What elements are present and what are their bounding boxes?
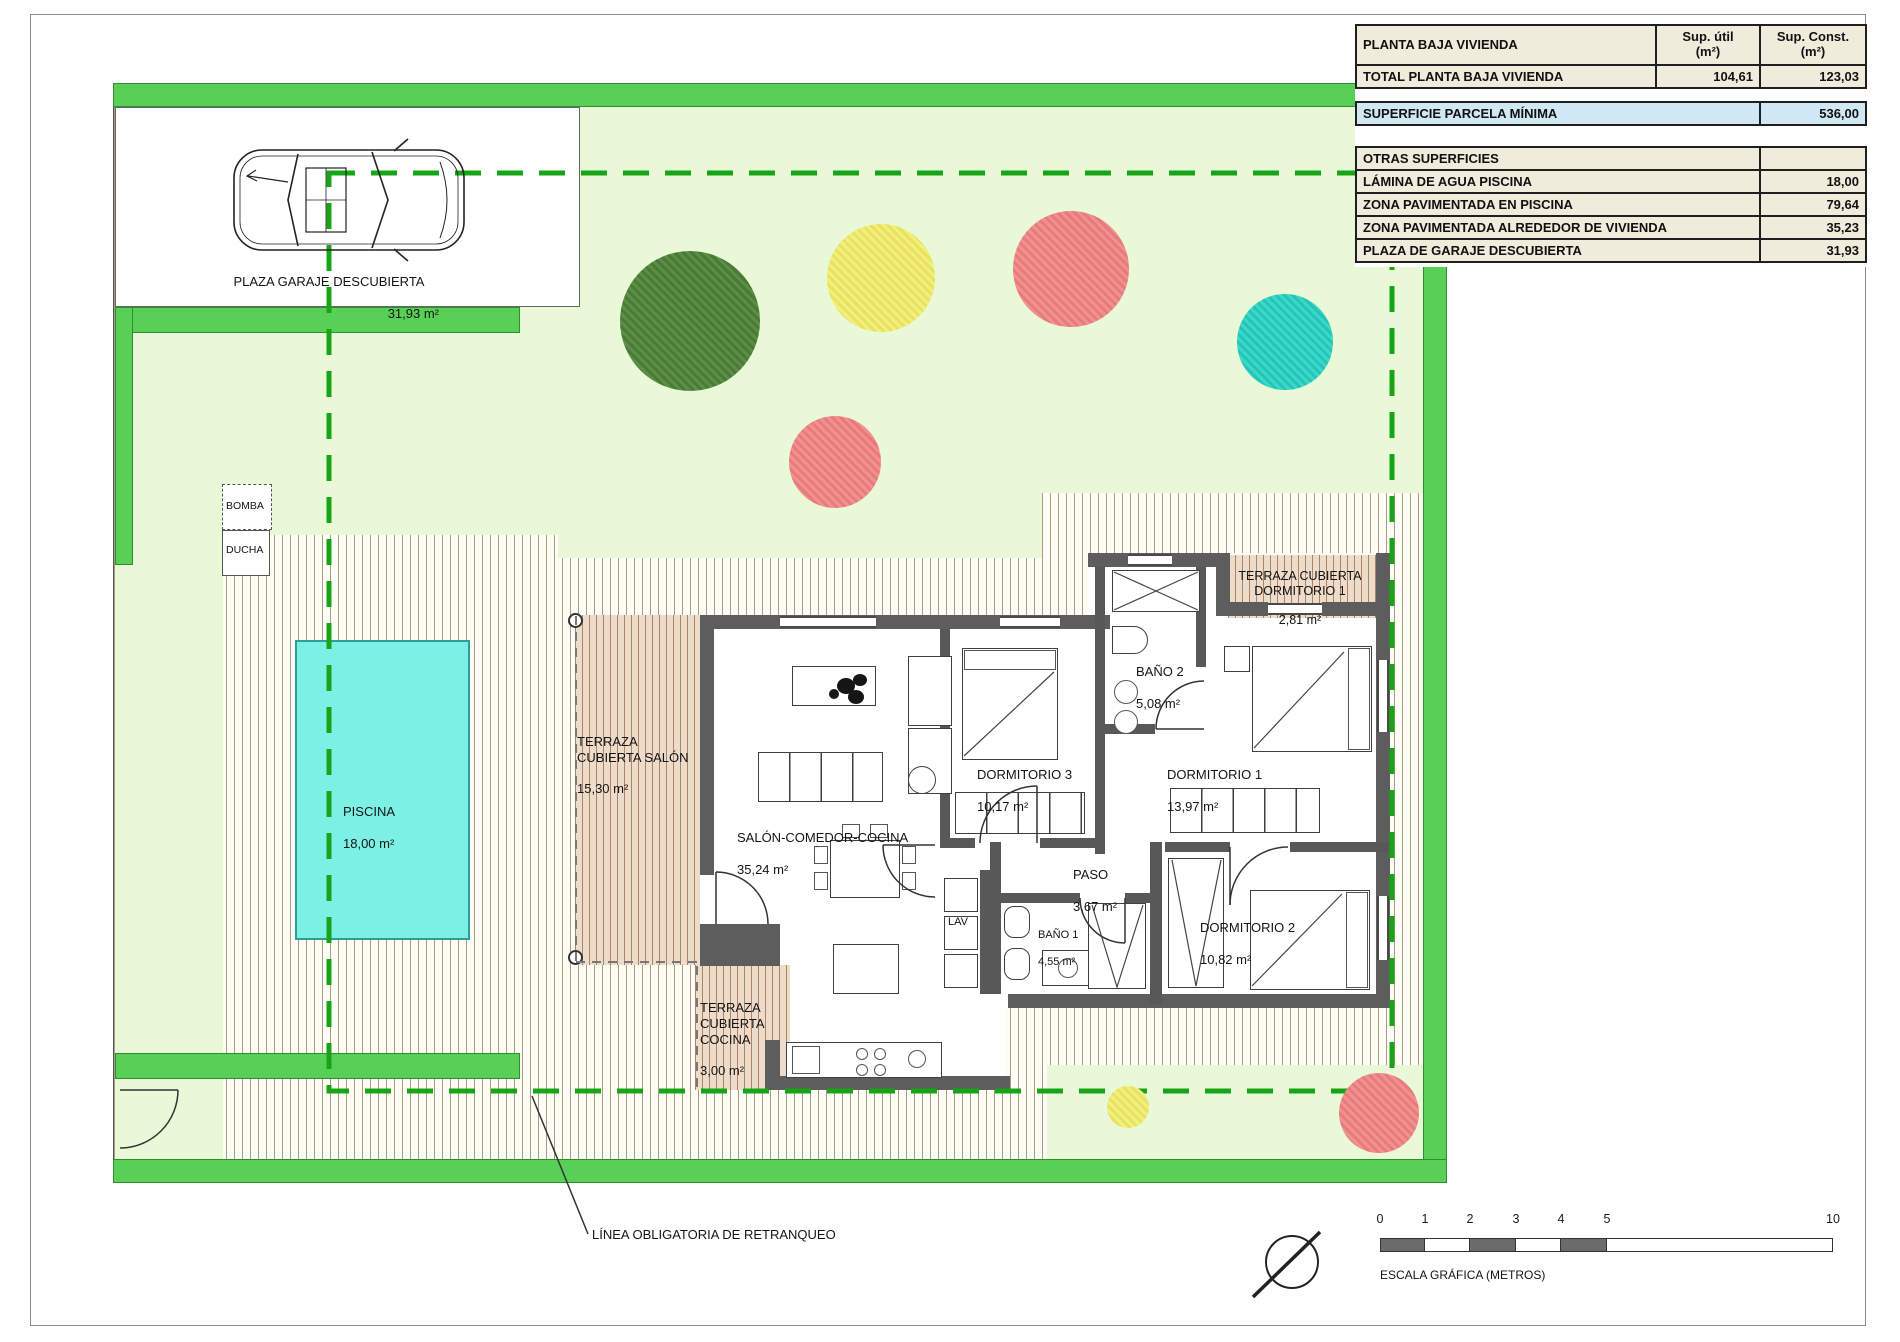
scale-tick: 10 — [1826, 1212, 1840, 1226]
label-terraza-dorm1: TERRAZA CUBIERTA DORMITORIO 1 2,81 m² — [1222, 554, 1378, 643]
tree-teal — [1237, 294, 1333, 390]
tree-dark-green — [620, 251, 760, 391]
tree-salmon-large — [1013, 211, 1129, 327]
leader-line — [532, 1096, 588, 1234]
label-garage: PLAZA GARAJE DESCUBIERTA 31,93 m² — [205, 258, 453, 337]
label-dorm2: DORMITORIO 2 10,82 m² — [1200, 904, 1295, 983]
label-bomba: BOMBA — [226, 500, 264, 513]
table-row: ZONA PAVIMENTADA EN PISCINA 79,64 — [1355, 192, 1867, 217]
label-terraza-salon: TERRAZA CUBIERTA SALÓN 15,30 m² — [577, 718, 689, 813]
scale-caption: ESCALA GRÁFICA (METROS) — [1380, 1268, 1545, 1283]
label-piscina: PISCINA 18,00 m² — [343, 788, 395, 867]
north-symbol-icon — [1253, 1232, 1320, 1297]
tree-yellow — [827, 224, 935, 332]
plan-sheet: PLAZA GARAJE DESCUBIERTA 31,93 m² PISCIN… — [0, 0, 1900, 1342]
scale-tick: 4 — [1558, 1212, 1565, 1226]
gate-arc — [120, 1090, 178, 1148]
label-salon: SALÓN-COMEDOR-COCINA 35,24 m² — [737, 814, 908, 893]
label-lav: LAV — [948, 916, 968, 929]
table-row: LÁMINA DE AGUA PISCINA 18,00 — [1355, 169, 1867, 194]
label-bano1: BAÑO 1 4,55 m² — [1038, 916, 1078, 983]
scale-tick: 1 — [1422, 1212, 1429, 1226]
scale-segment — [1606, 1238, 1833, 1252]
label-ducha: DUCHA — [226, 544, 263, 557]
scale-tick: 3 — [1513, 1212, 1520, 1226]
label-terraza-cocina: TERRAZA CUBIERTA COCINA 3,00 m² — [700, 984, 765, 1095]
tree-salmon-mid — [789, 416, 881, 508]
scale-tick: 2 — [1467, 1212, 1474, 1226]
col-sup-util: Sup. útil (m²) — [1655, 26, 1759, 64]
car-icon — [234, 139, 464, 261]
table-row: ZONA PAVIMENTADA ALREDEDOR DE VIVIENDA 3… — [1355, 215, 1867, 240]
label-bano2: BAÑO 2 5,08 m² — [1136, 648, 1184, 727]
label-garage-name: PLAZA GARAJE DESCUBIERTA — [205, 274, 453, 290]
label-paso: PASO 3,67 m² — [1073, 851, 1117, 930]
table-title: PLANTA BAJA VIVIENDA — [1357, 26, 1655, 64]
label-dorm3: DORMITORIO 3 10,17 m² — [977, 751, 1072, 830]
scale-tick: 0 — [1377, 1212, 1384, 1226]
scale-segment — [1469, 1238, 1516, 1252]
table-row-parcela: SUPERFICIE PARCELA MÍNIMA 536,00 — [1355, 101, 1867, 126]
table-row-otras-title: OTRAS SUPERFICIES — [1355, 146, 1867, 171]
scale-segment — [1380, 1238, 1425, 1252]
scale-tick: 5 — [1604, 1212, 1611, 1226]
label-retranqueo: LÍNEA OBLIGATORIA DE RETRANQUEO — [592, 1227, 836, 1243]
table-row: PLAZA DE GARAJE DESCUBIERTA 31,93 — [1355, 238, 1867, 263]
label-dorm1: DORMITORIO 1 13,97 m² — [1167, 751, 1262, 830]
scale-segment — [1424, 1238, 1470, 1252]
area-table: PLANTA BAJA VIVIENDA Sup. útil (m²) Sup.… — [1355, 26, 1867, 267]
scale-segment — [1515, 1238, 1561, 1252]
plant-icon — [829, 674, 867, 704]
tree-salmon-bottom — [1339, 1073, 1419, 1153]
label-garage-area: 31,93 m² — [205, 306, 453, 322]
col-sup-const: Sup. Const. (m²) — [1759, 26, 1865, 64]
table-row-total: TOTAL PLANTA BAJA VIVIENDA 104,61 123,03 — [1355, 64, 1867, 89]
shrub-yellow-small — [1107, 1086, 1149, 1128]
scale-segment — [1560, 1238, 1607, 1252]
table-header-row: PLANTA BAJA VIVIENDA Sup. útil (m²) Sup.… — [1355, 24, 1867, 66]
